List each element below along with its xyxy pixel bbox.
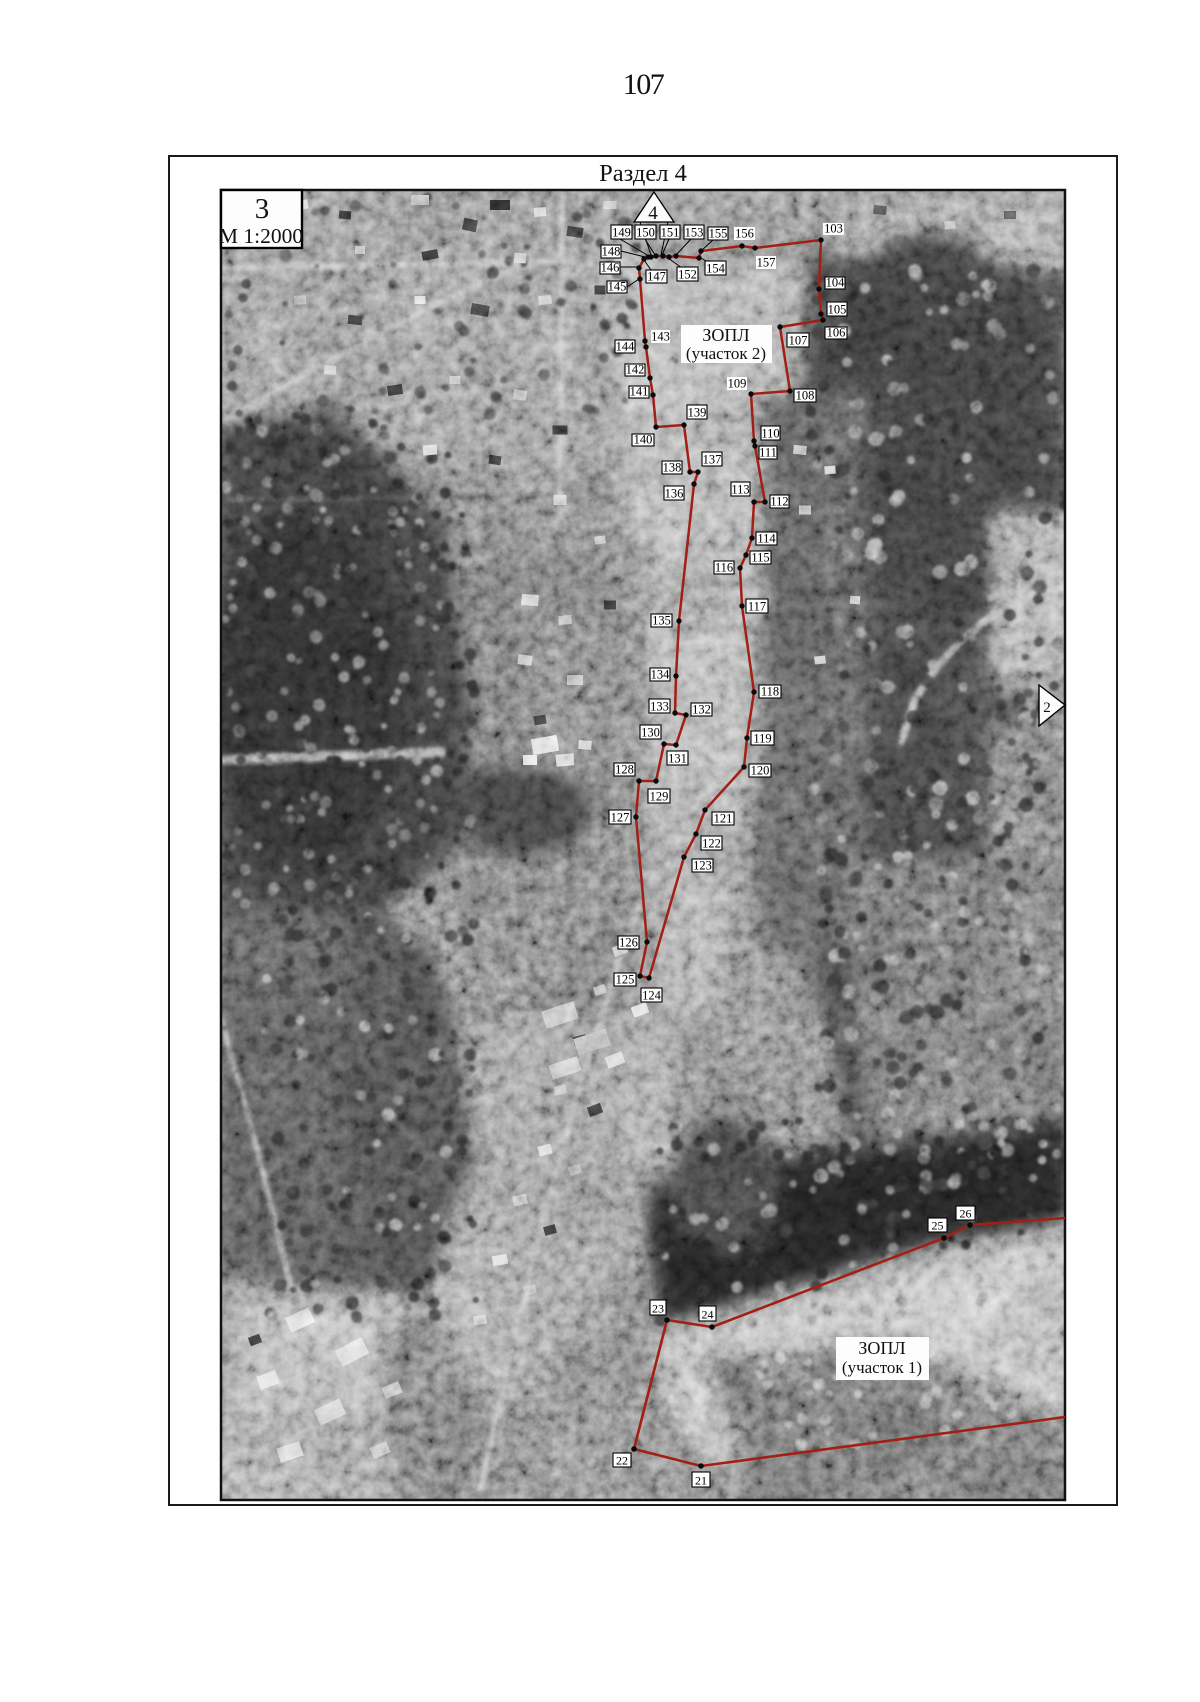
svg-text:131: 131	[668, 752, 687, 766]
svg-text:4: 4	[648, 203, 658, 224]
svg-text:122: 122	[702, 837, 721, 851]
svg-text:24: 24	[702, 1308, 714, 1322]
svg-text:ЗОПЛ: ЗОПЛ	[858, 1338, 905, 1358]
svg-text:154: 154	[706, 262, 726, 276]
svg-text:26: 26	[960, 1207, 972, 1221]
svg-text:111: 111	[759, 446, 777, 460]
svg-text:152: 152	[678, 268, 697, 282]
svg-text:135: 135	[652, 614, 671, 628]
svg-text:109: 109	[728, 377, 747, 391]
svg-text:120: 120	[751, 764, 770, 778]
svg-text:103: 103	[824, 222, 843, 236]
svg-text:М 1:2000: М 1:2000	[219, 224, 303, 248]
svg-text:143: 143	[651, 330, 670, 344]
svg-text:116: 116	[715, 561, 733, 575]
svg-text:139: 139	[688, 406, 707, 420]
svg-text:119: 119	[753, 732, 771, 746]
svg-text:138: 138	[663, 461, 682, 475]
svg-text:147: 147	[647, 270, 666, 284]
svg-text:153: 153	[685, 226, 704, 240]
svg-text:130: 130	[641, 726, 660, 740]
svg-text:114: 114	[757, 532, 776, 546]
svg-text:142: 142	[626, 363, 645, 377]
svg-text:151: 151	[661, 226, 680, 240]
svg-text:115: 115	[751, 551, 769, 565]
svg-text:21: 21	[695, 1474, 707, 1488]
svg-text:108: 108	[796, 389, 815, 403]
svg-text:104: 104	[826, 276, 846, 290]
svg-text:3: 3	[255, 193, 270, 225]
svg-text:23: 23	[652, 1302, 664, 1316]
svg-text:(участок 1): (участок 1)	[842, 1358, 922, 1377]
svg-text:118: 118	[761, 685, 779, 699]
svg-text:117: 117	[748, 600, 766, 614]
svg-text:129: 129	[650, 790, 669, 804]
svg-text:133: 133	[650, 700, 669, 714]
svg-text:140: 140	[634, 433, 653, 447]
svg-text:132: 132	[692, 703, 711, 717]
svg-text:121: 121	[714, 812, 733, 826]
svg-text:(участок 2): (участок 2)	[686, 344, 766, 363]
svg-text:155: 155	[709, 227, 728, 241]
svg-text:106: 106	[827, 326, 846, 340]
svg-text:150: 150	[636, 226, 655, 240]
svg-text:123: 123	[693, 859, 712, 873]
svg-text:110: 110	[761, 427, 779, 441]
svg-text:126: 126	[619, 936, 638, 950]
svg-text:144: 144	[616, 340, 636, 354]
svg-text:112: 112	[770, 495, 788, 509]
svg-text:157: 157	[757, 256, 776, 270]
svg-text:107: 107	[623, 68, 665, 101]
svg-text:107: 107	[789, 334, 808, 348]
svg-text:141: 141	[630, 385, 649, 399]
svg-text:25: 25	[932, 1219, 944, 1233]
svg-text:149: 149	[612, 226, 631, 240]
svg-text:146: 146	[601, 261, 620, 275]
svg-text:105: 105	[828, 303, 847, 317]
svg-text:128: 128	[615, 763, 634, 777]
svg-text:127: 127	[611, 811, 630, 825]
svg-text:148: 148	[602, 245, 621, 259]
svg-text:124: 124	[642, 989, 662, 1003]
svg-text:22: 22	[616, 1454, 628, 1468]
svg-text:125: 125	[616, 973, 635, 987]
svg-text:145: 145	[608, 280, 627, 294]
svg-text:113: 113	[731, 483, 749, 497]
svg-text:134: 134	[651, 668, 671, 682]
svg-text:2: 2	[1043, 700, 1051, 716]
svg-text:Раздел 4: Раздел 4	[599, 160, 687, 187]
svg-text:ЗОПЛ: ЗОПЛ	[702, 325, 749, 345]
svg-text:136: 136	[665, 487, 684, 501]
svg-text:137: 137	[703, 453, 722, 467]
svg-text:156: 156	[735, 227, 754, 241]
